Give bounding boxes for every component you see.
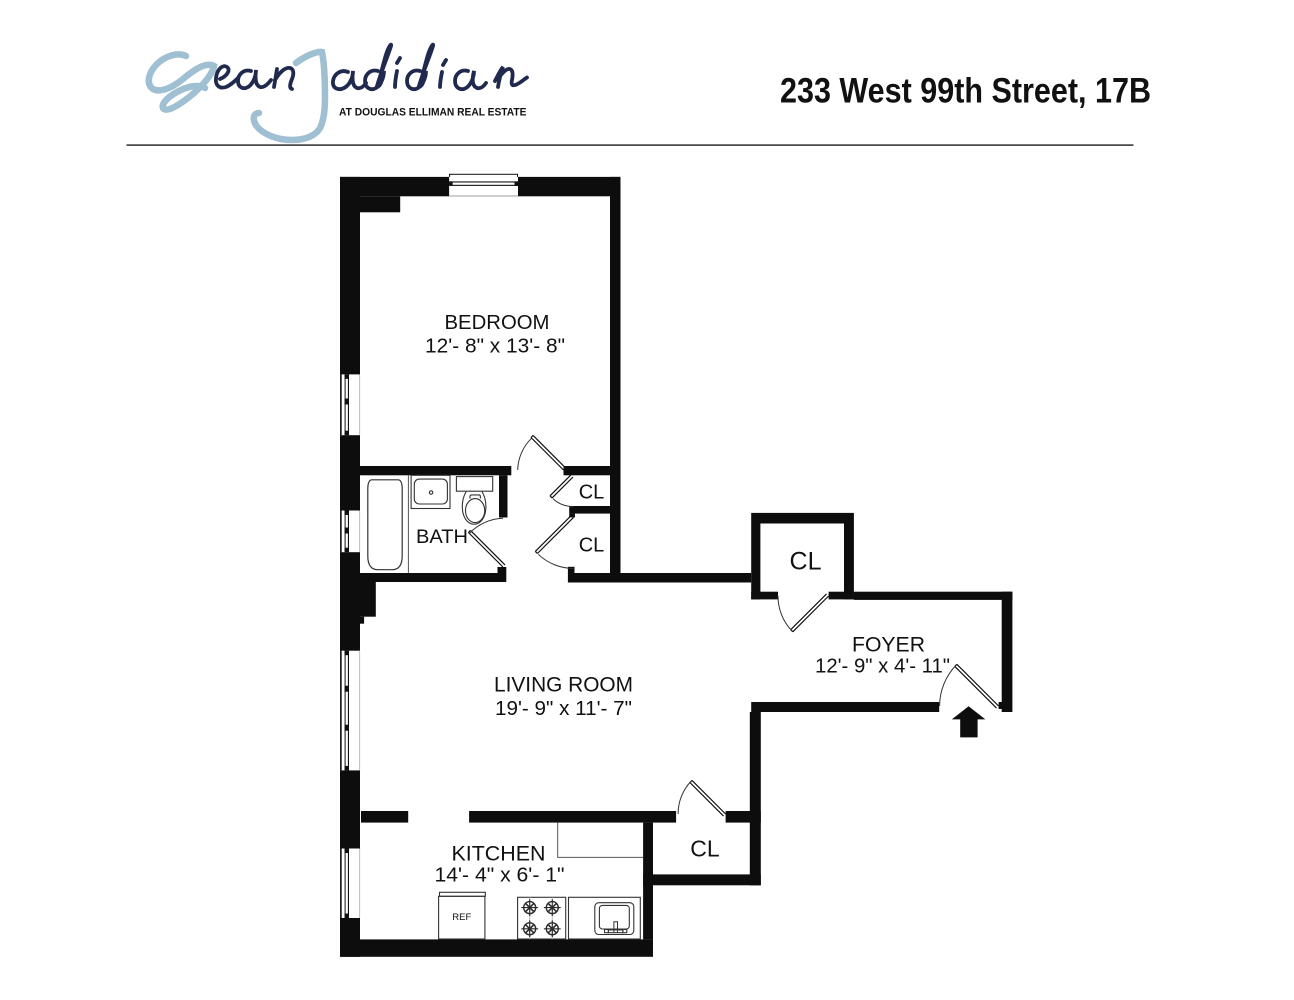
- svg-text:CL: CL: [690, 836, 720, 862]
- svg-text:LIVING ROOM: LIVING ROOM: [494, 674, 633, 697]
- svg-text:AT DOUGLAS ELLIMAN REAL ESTATE: AT DOUGLAS ELLIMAN REAL ESTATE: [339, 106, 527, 118]
- svg-text:12'- 9" x 4'- 11": 12'- 9" x 4'- 11": [815, 654, 950, 677]
- svg-text:233 West 99th Street, 17B: 233 West 99th Street, 17B: [780, 72, 1151, 111]
- svg-text:CL: CL: [790, 548, 822, 576]
- svg-text:19'- 9" x 11'- 7": 19'- 9" x 11'- 7": [495, 697, 632, 720]
- svg-text:14'- 4" x 6'- 1": 14'- 4" x 6'- 1": [435, 864, 565, 887]
- svg-text:BEDROOM: BEDROOM: [445, 311, 550, 334]
- svg-text:CL: CL: [579, 482, 605, 504]
- svg-text:CL: CL: [579, 535, 605, 557]
- svg-text:BATH: BATH: [416, 527, 468, 548]
- svg-text:REF: REF: [452, 912, 471, 923]
- svg-text:12'- 8" x 13'- 8": 12'- 8" x 13'- 8": [425, 335, 565, 358]
- svg-text:FOYER: FOYER: [852, 634, 925, 657]
- svg-text:KITCHEN: KITCHEN: [452, 843, 546, 866]
